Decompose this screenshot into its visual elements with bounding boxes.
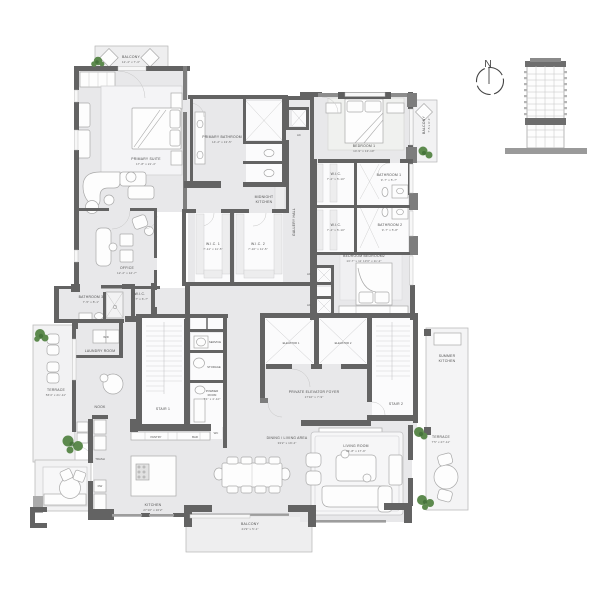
svg-text:BATHROOM 1: BATHROOM 1 xyxy=(377,173,402,177)
svg-text:LAUNDRY ROOM: LAUNDRY ROOM xyxy=(85,349,116,353)
svg-text:W/D: W/D xyxy=(103,335,108,339)
svg-text:14'-9" x 13'-10": 14'-9" x 13'-10" xyxy=(353,149,375,153)
svg-text:N: N xyxy=(484,58,492,70)
svg-text:14'-2" x 13'-5": 14'-2" x 13'-5" xyxy=(212,140,232,144)
svg-text:SUMMER: SUMMER xyxy=(439,354,456,358)
svg-text:GALLERY HALL: GALLERY HALL xyxy=(292,208,296,236)
svg-text:BATHROOM 2: BATHROOM 2 xyxy=(378,223,403,227)
svg-text:W.I.C. 1: W.I.C. 1 xyxy=(206,242,220,246)
svg-text:BALCONY: BALCONY xyxy=(122,55,140,59)
svg-text:LIVING ROOM: LIVING ROOM xyxy=(343,444,368,448)
svg-text:7'-4" x 5'-10": 7'-4" x 5'-10" xyxy=(327,228,345,232)
svg-text:W.I.C.: W.I.C. xyxy=(331,223,342,227)
svg-text:PRIMARY SUITE: PRIMARY SUITE xyxy=(131,157,161,161)
svg-text:17'10" x 7'-9": 17'10" x 7'-9" xyxy=(305,395,324,399)
svg-text:DW: DW xyxy=(98,484,103,488)
svg-text:KITCHEN: KITCHEN xyxy=(439,359,456,363)
svg-text:BEDROOM BEDROOM2: BEDROOM BEDROOM2 xyxy=(343,254,385,258)
svg-text:STAIR 2: STAIR 2 xyxy=(389,402,403,406)
svg-text:W.I.C. 2: W.I.C. 2 xyxy=(251,242,265,246)
svg-text:21'9" x 5'-1": 21'9" x 5'-1" xyxy=(241,527,258,531)
svg-text:OFFICE: OFFICE xyxy=(120,266,134,270)
svg-text:PANTRY: PANTRY xyxy=(150,435,161,439)
svg-text:17'-8" x 21'-4": 17'-8" x 21'-4" xyxy=(136,162,156,166)
svg-text:BALCONY: BALCONY xyxy=(241,522,259,526)
svg-text:9'-7" x 5'-7": 9'-7" x 5'-7" xyxy=(381,178,397,182)
svg-text:BAR: BAR xyxy=(192,435,198,439)
svg-text:56'4" x 21'-11": 56'4" x 21'-11" xyxy=(46,393,66,397)
svg-text:DINING / LIVING AREA: DINING / LIVING AREA xyxy=(267,436,308,440)
svg-text:TERRACE: TERRACE xyxy=(432,435,450,439)
svg-text:7'-5" x 8'-1": 7'-5" x 8'-1" xyxy=(83,300,99,304)
svg-text:7'5" x 27'-11": 7'5" x 27'-11" xyxy=(432,440,451,444)
svg-text:KITCHEN: KITCHEN xyxy=(145,503,162,507)
svg-text:12'-4" x 7'-3": 12'-4" x 7'-3" xyxy=(122,60,140,64)
svg-text:7'-5 x 9'-1": 7'-5 x 9'-1" xyxy=(427,117,431,132)
svg-text:7'1" x 4'-10": 7'1" x 4'-10" xyxy=(203,397,220,401)
svg-text:33'2" x 19'-4": 33'2" x 19'-4" xyxy=(278,441,297,445)
svg-text:7'-10" x 11'-5": 7'-10" x 11'-5" xyxy=(248,247,268,251)
svg-text:ELEVATOR 2: ELEVATOR 2 xyxy=(335,341,352,345)
svg-text:TRASH: TRASH xyxy=(95,457,104,461)
svg-text:ELEVATOR 1: ELEVATOR 1 xyxy=(283,341,300,345)
svg-text:13'-7" x 11' 13'0" x 11'-2": 13'-7" x 11' 13'0" x 11'-2" xyxy=(346,259,381,263)
svg-text:KITCHEN: KITCHEN xyxy=(256,200,273,204)
svg-text:MIDNIGHT: MIDNIGHT xyxy=(255,195,274,199)
svg-text:AC: AC xyxy=(297,133,301,137)
svg-text:7'-11" x 11'-5": 7'-11" x 11'-5" xyxy=(203,247,223,251)
svg-text:34'-8" x 17'-9": 34'-8" x 17'-9" xyxy=(346,449,366,453)
svg-text:9'-7" x 5'-8": 9'-7" x 5'-8" xyxy=(382,228,398,232)
svg-text:STORAGE: STORAGE xyxy=(207,365,221,369)
svg-text:PRIMARY BATHROOM: PRIMARY BATHROOM xyxy=(202,135,242,139)
svg-text:BEDROOM 1: BEDROOM 1 xyxy=(353,144,376,148)
svg-text:BATHROOM 3: BATHROOM 3 xyxy=(79,295,104,299)
svg-text:12'-2" x 12'-7": 12'-2" x 12'-7" xyxy=(117,271,137,275)
svg-text:27'10" x 16'2": 27'10" x 16'2" xyxy=(143,508,163,512)
svg-text:W.I.C.: W.I.C. xyxy=(331,172,342,176)
svg-text:AC: AC xyxy=(307,303,311,307)
svg-text:TERRACE: TERRACE xyxy=(47,388,65,392)
svg-text:PRIVATE ELEVATOR FOYER: PRIVATE ELEVATOR FOYER xyxy=(289,390,340,394)
svg-text:4'-7" x 6'-7": 4'-7" x 6'-7" xyxy=(132,297,148,301)
svg-text:BALCONY: BALCONY xyxy=(422,116,426,134)
svg-text:W.I.C.: W.I.C. xyxy=(135,292,146,296)
svg-text:SERVICE: SERVICE xyxy=(209,340,221,344)
svg-text:WC: WC xyxy=(214,431,219,435)
svg-text:NOOK: NOOK xyxy=(95,405,106,409)
svg-text:STAIR 1: STAIR 1 xyxy=(156,407,170,411)
svg-text:7'-2" x 5'-10": 7'-2" x 5'-10" xyxy=(327,177,345,181)
svg-text:AC: AC xyxy=(307,272,311,276)
